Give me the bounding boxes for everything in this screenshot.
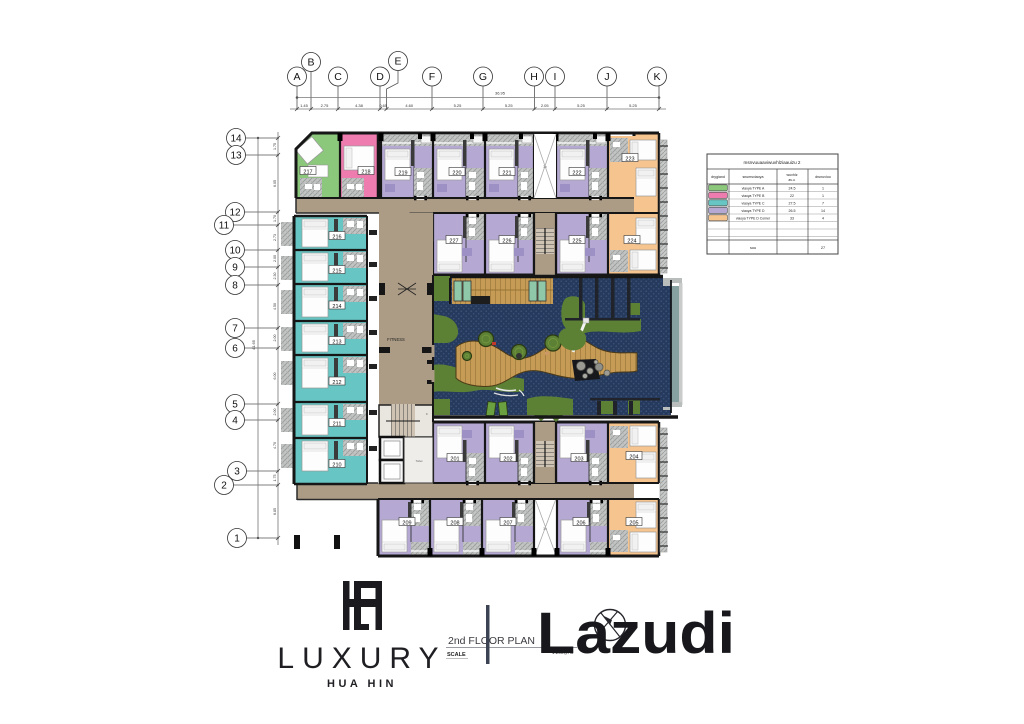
svg-text:drunuvioo: drunuvioo	[815, 175, 831, 179]
svg-text:2.00: 2.00	[273, 409, 277, 416]
svg-text:2.73: 2.73	[273, 234, 277, 241]
svg-text:10: 10	[229, 246, 241, 257]
svg-text:7: 7	[232, 324, 238, 335]
svg-text:4.38: 4.38	[355, 103, 364, 108]
svg-text:33: 33	[790, 217, 794, 221]
svg-text:24.5: 24.5	[789, 187, 796, 191]
svg-text:215: 215	[332, 269, 341, 275]
svg-text:9: 9	[232, 263, 238, 274]
svg-text:I: I	[554, 71, 557, 83]
svg-text:206: 206	[576, 521, 585, 527]
svg-text:216: 216	[332, 235, 341, 241]
svg-text:1: 1	[822, 194, 824, 198]
svg-text:22: 22	[790, 194, 794, 198]
svg-text:204: 204	[629, 455, 638, 461]
svg-text:D: D	[376, 71, 384, 83]
svg-text:5.25: 5.25	[629, 103, 638, 108]
svg-text:225: 225	[572, 239, 581, 245]
svg-text:Toilet: Toilet	[415, 459, 422, 463]
svg-text:203: 203	[574, 457, 583, 463]
svg-text:3x: 3x	[543, 165, 547, 169]
svg-text:209: 209	[402, 521, 411, 527]
svg-text:as.u.: as.u.	[789, 178, 796, 182]
svg-text:214: 214	[332, 304, 341, 310]
svg-text:K: K	[653, 71, 660, 83]
svg-text:202: 202	[503, 457, 512, 463]
svg-text:205: 205	[629, 521, 638, 527]
svg-text:viaoya TYPE C: viaoya TYPE C	[742, 202, 765, 206]
svg-text:msnvuuaaviwuvhlziaauizu 2: msnvuuaaviwuvhlziaauizu 2	[744, 160, 801, 165]
svg-text:C: C	[334, 71, 342, 83]
svg-text:221: 221	[502, 171, 511, 177]
svg-text:6.00: 6.00	[273, 373, 277, 380]
svg-text:HUA HIN: HUA HIN	[327, 678, 397, 690]
svg-text:FITNESS: FITNESS	[387, 337, 405, 342]
svg-text:227: 227	[449, 239, 458, 245]
svg-text:223: 223	[625, 157, 634, 163]
svg-text:1.75: 1.75	[273, 475, 277, 482]
svg-text:sou: sou	[750, 246, 756, 250]
svg-text:3x: 3x	[543, 527, 547, 531]
svg-text:5.25: 5.25	[505, 103, 514, 108]
svg-text:B: B	[307, 57, 314, 69]
svg-text:201: 201	[450, 457, 459, 463]
svg-text:4: 4	[822, 217, 824, 221]
svg-text:1.45: 1.45	[300, 103, 309, 108]
svg-text:J: J	[604, 71, 609, 83]
svg-text:viaoya TYPE D: viaoya TYPE D	[742, 209, 765, 213]
svg-text:14: 14	[230, 134, 242, 145]
svg-text:222: 222	[572, 171, 581, 177]
svg-text:210: 210	[332, 463, 341, 469]
svg-text:2.75: 2.75	[321, 103, 330, 108]
svg-text:1.75: 1.75	[273, 143, 277, 150]
svg-text:viaoya TYPE D Corner: viaoya TYPE D Corner	[736, 217, 771, 221]
svg-text:26.5: 26.5	[789, 209, 796, 213]
svg-text:A: A	[293, 71, 300, 83]
svg-text:4.50: 4.50	[273, 303, 277, 310]
svg-text:41.65: 41.65	[251, 339, 256, 350]
svg-text:5.25: 5.25	[454, 103, 463, 108]
svg-text:2.00: 2.00	[273, 335, 277, 342]
svg-text:drygiand: drygiand	[711, 175, 725, 179]
svg-text:14: 14	[821, 209, 825, 213]
svg-text:7: 7	[822, 202, 824, 206]
svg-text:217: 217	[303, 170, 312, 176]
svg-text:4.70: 4.70	[273, 442, 277, 449]
svg-text:H: H	[530, 71, 538, 83]
svg-text:207: 207	[503, 521, 512, 527]
svg-text:4: 4	[232, 416, 238, 427]
svg-text:wuvhlz: wuvhlz	[787, 173, 798, 177]
svg-text:1: 1	[822, 187, 824, 191]
svg-text:27.5: 27.5	[789, 202, 796, 206]
svg-text:27: 27	[821, 246, 825, 250]
svg-text:2.30: 2.30	[273, 273, 277, 280]
svg-text:Lazudi: Lazudi	[537, 601, 735, 666]
svg-text:13: 13	[230, 151, 242, 162]
svg-text:6: 6	[232, 344, 238, 355]
svg-text:E: E	[394, 56, 401, 68]
svg-text:6.85: 6.85	[273, 508, 277, 515]
svg-text:1: 1	[234, 534, 240, 545]
svg-text:220: 220	[452, 171, 461, 177]
svg-text:2: 2	[221, 481, 227, 492]
svg-text:3: 3	[234, 467, 240, 478]
svg-text:8: 8	[232, 281, 238, 292]
svg-text:6.05: 6.05	[273, 180, 277, 187]
svg-text:36.95: 36.95	[495, 91, 506, 96]
svg-text:212: 212	[332, 380, 341, 386]
svg-text:5.25: 5.25	[577, 103, 586, 108]
svg-text:213: 213	[332, 340, 341, 346]
svg-text:5: 5	[232, 400, 238, 411]
svg-text:1.70: 1.70	[273, 215, 277, 222]
svg-text:F: F	[429, 71, 435, 83]
svg-text:224: 224	[627, 239, 636, 245]
svg-text:0.65: 0.65	[379, 103, 388, 108]
svg-text:LUXURY: LUXURY	[277, 642, 446, 675]
svg-text:211: 211	[333, 422, 342, 428]
svg-text:2.00: 2.00	[273, 255, 277, 262]
svg-text:viaoya TYPE A: viaoya TYPE A	[742, 187, 765, 191]
svg-text:4.60: 4.60	[405, 103, 414, 108]
svg-text:11: 11	[219, 221, 230, 232]
svg-text:viaoya TYPE B: viaoya TYPE B	[742, 194, 765, 198]
svg-text:219: 219	[398, 171, 407, 177]
svg-text:2nd FLOOR PLAN: 2nd FLOOR PLAN	[448, 635, 535, 647]
svg-text:G: G	[479, 71, 487, 83]
svg-text:218: 218	[361, 170, 370, 176]
svg-text:12: 12	[229, 208, 241, 219]
svg-text:2.05: 2.05	[541, 103, 550, 108]
svg-text:snumsviaoya: snumsviaoya	[743, 175, 764, 179]
svg-text:208: 208	[450, 521, 459, 527]
svg-text:226: 226	[502, 239, 511, 245]
svg-text:SCALE: SCALE	[447, 652, 466, 658]
svg-text:F: F	[426, 412, 428, 416]
